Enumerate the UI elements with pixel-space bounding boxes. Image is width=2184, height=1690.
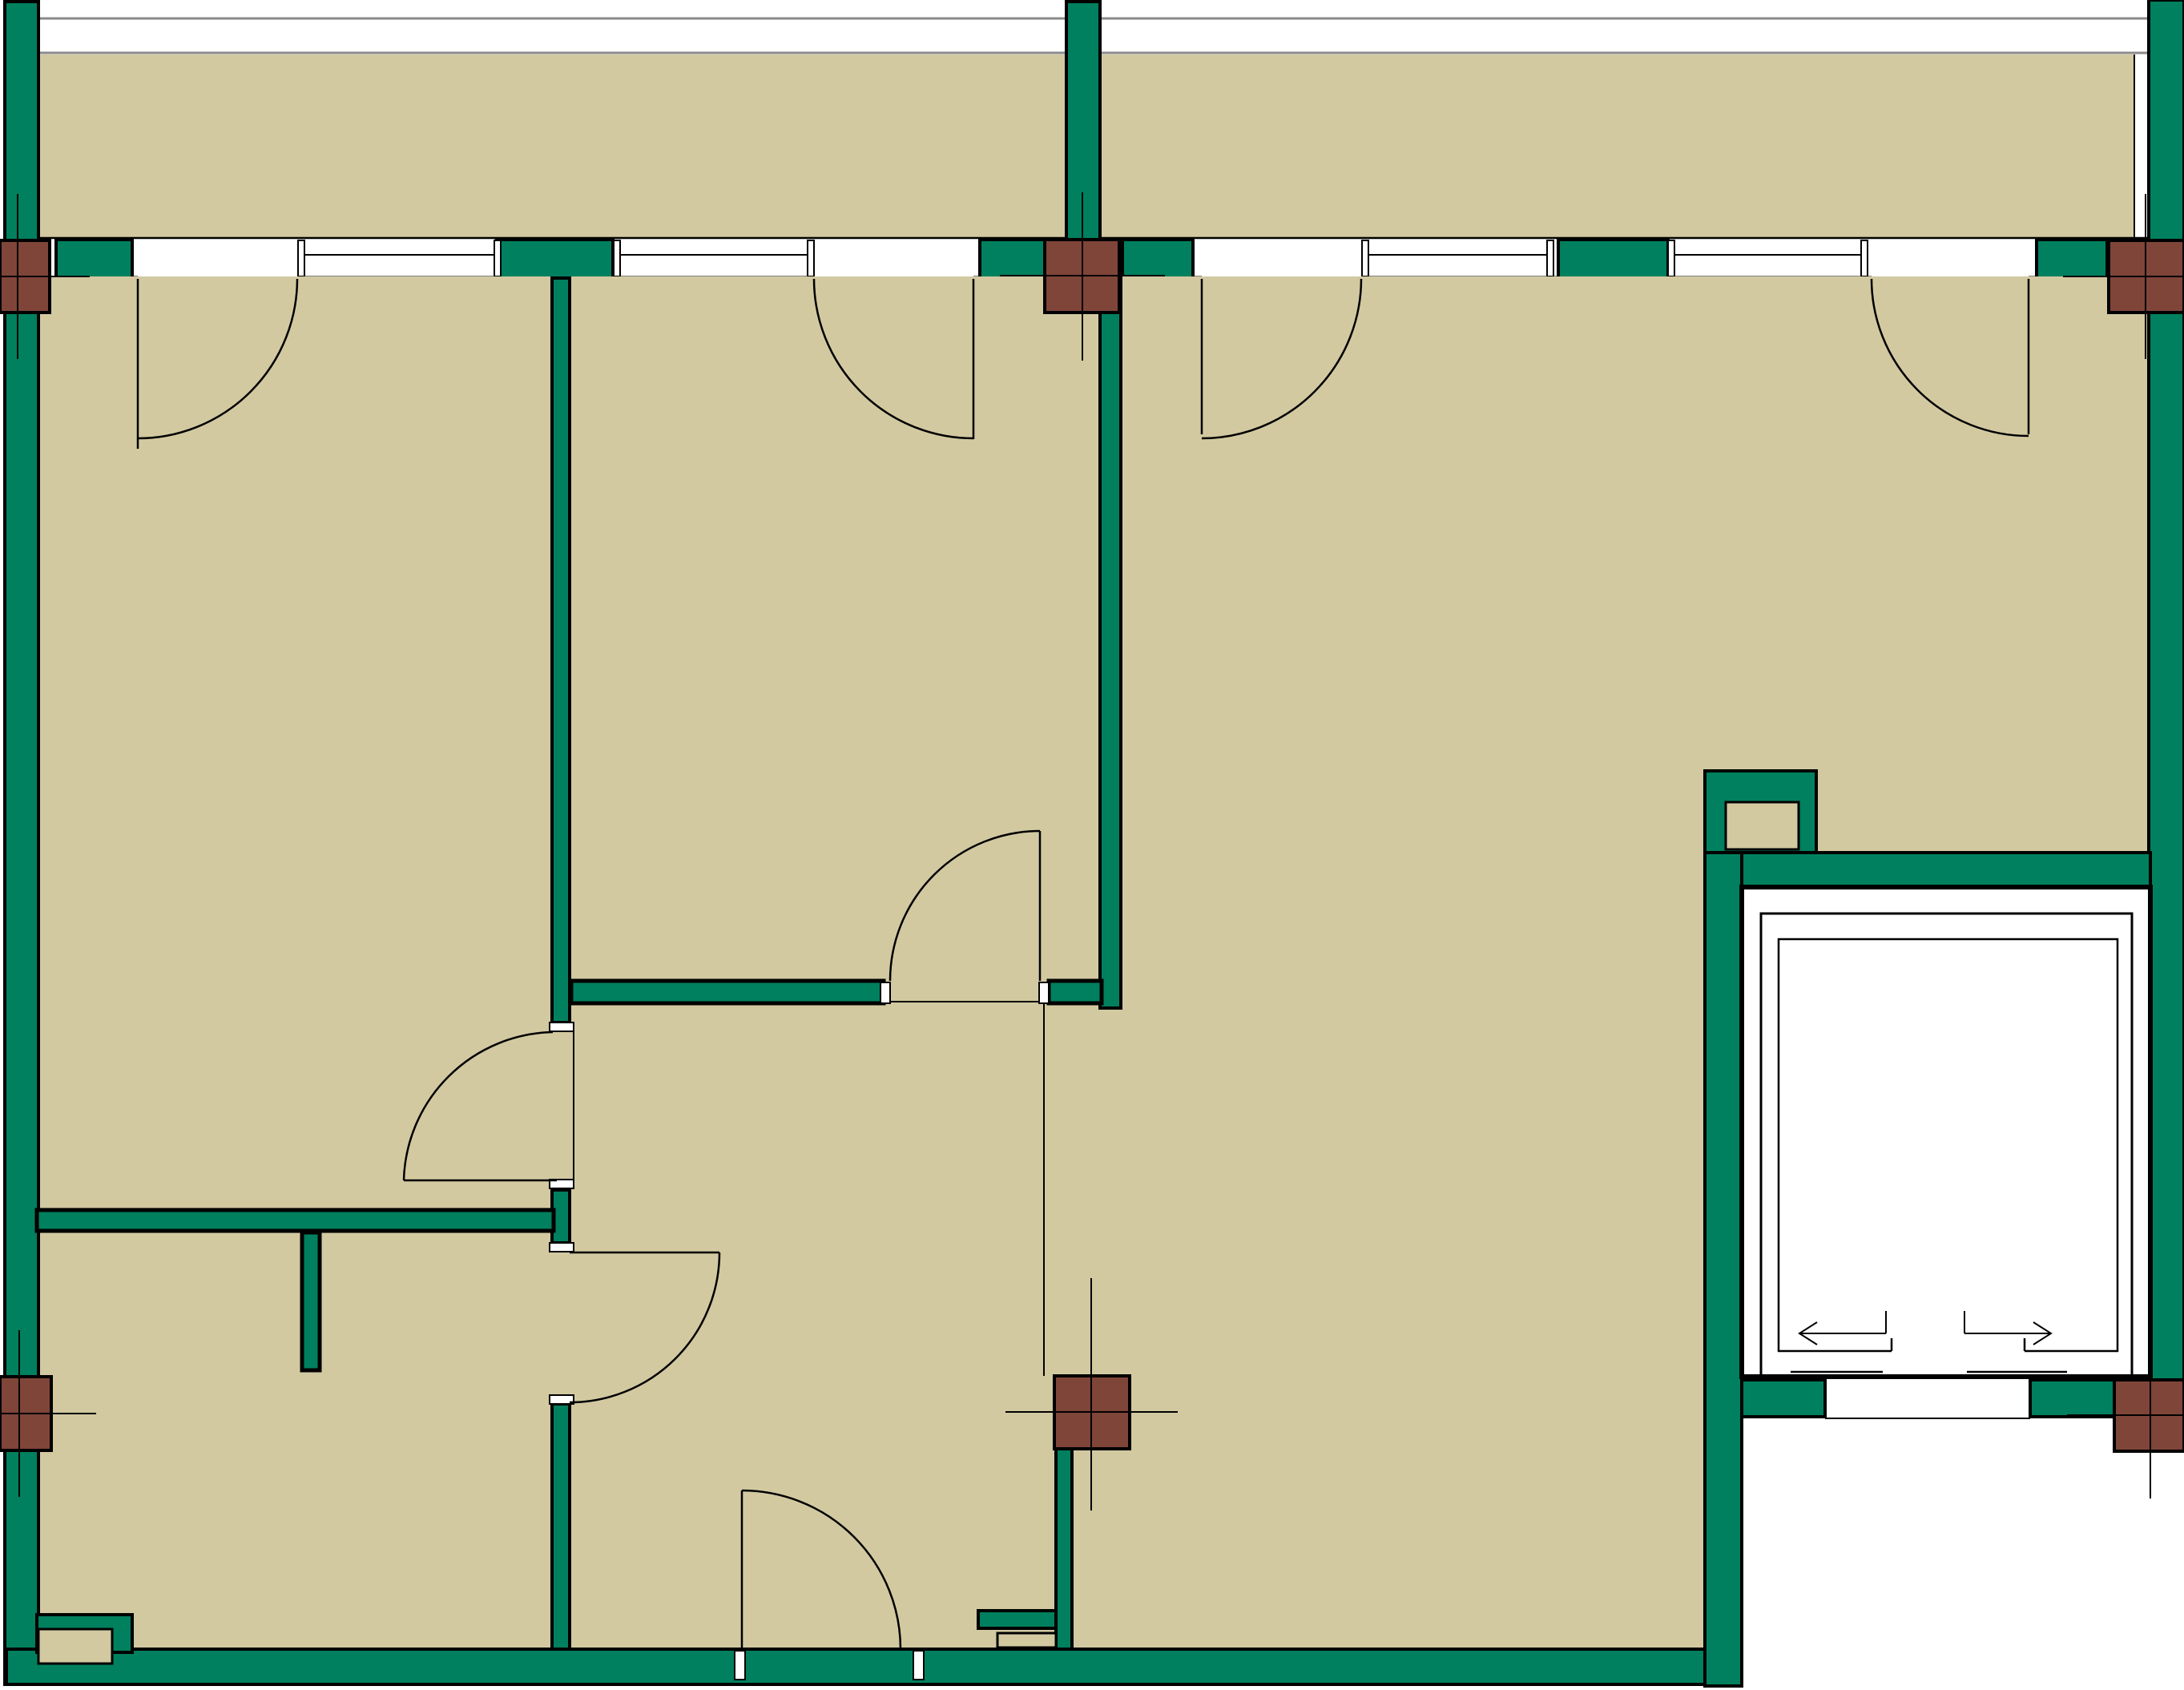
window-3-jamb-left — [1362, 240, 1368, 276]
window-4-jamb-right — [1861, 240, 1868, 276]
window-3-jamb-right — [1547, 240, 1553, 276]
balcony-floor-right — [1102, 54, 2134, 238]
wall-corridor-north-left — [571, 981, 884, 1003]
corridor-east-wall — [1705, 853, 1742, 1686]
entry-partition-step — [978, 1611, 1056, 1628]
jamb — [550, 1022, 574, 1031]
pier-2 — [497, 240, 613, 278]
window-2-jamb-left — [614, 240, 620, 276]
balcony-floor-left — [38, 54, 1066, 238]
exterior-wall-right — [2149, 0, 2184, 1383]
elevator — [1742, 887, 2150, 1418]
pier-3 — [980, 240, 1045, 278]
jamb — [550, 1243, 574, 1252]
elevator-landing-pier-left — [1742, 1380, 1825, 1417]
wall-room1-lower — [552, 1404, 570, 1649]
pier-1 — [56, 240, 132, 278]
window-1-jamb-left — [298, 240, 304, 276]
jamb — [735, 1651, 745, 1680]
entry-niche — [997, 1633, 1056, 1648]
bottom-left-niche — [38, 1629, 112, 1664]
elevator-landing-pier-right — [2030, 1380, 2114, 1417]
window-2-jamb-right — [808, 240, 814, 276]
elevator-jog-niche — [1726, 802, 1799, 849]
wall-room1-room2-upper — [552, 278, 570, 1022]
wall-corridor-north-right — [1049, 981, 1102, 1003]
floor-plan-canvas — [0, 0, 2184, 1690]
jamb — [1039, 982, 1049, 1003]
floor-plan — [0, 0, 2184, 1690]
pier-5 — [1558, 240, 1668, 278]
wall-room1-storage — [37, 1210, 554, 1231]
window-4-jamb-left — [1668, 240, 1674, 276]
elevator-shaft-outer — [1742, 887, 2150, 1377]
storage-partition-stub — [302, 1232, 320, 1370]
entry-partition-wall — [1056, 1449, 1072, 1649]
elevator-shaft-top-wall — [1742, 853, 2150, 887]
exterior-wall-bottom — [6, 1649, 1742, 1684]
jamb — [913, 1651, 924, 1680]
window-1-jamb-right — [494, 240, 501, 276]
jamb — [880, 982, 890, 1003]
pier-6 — [2037, 240, 2107, 278]
pier-4 — [1122, 240, 1193, 278]
wall-room2-room3 — [1100, 278, 1121, 1008]
